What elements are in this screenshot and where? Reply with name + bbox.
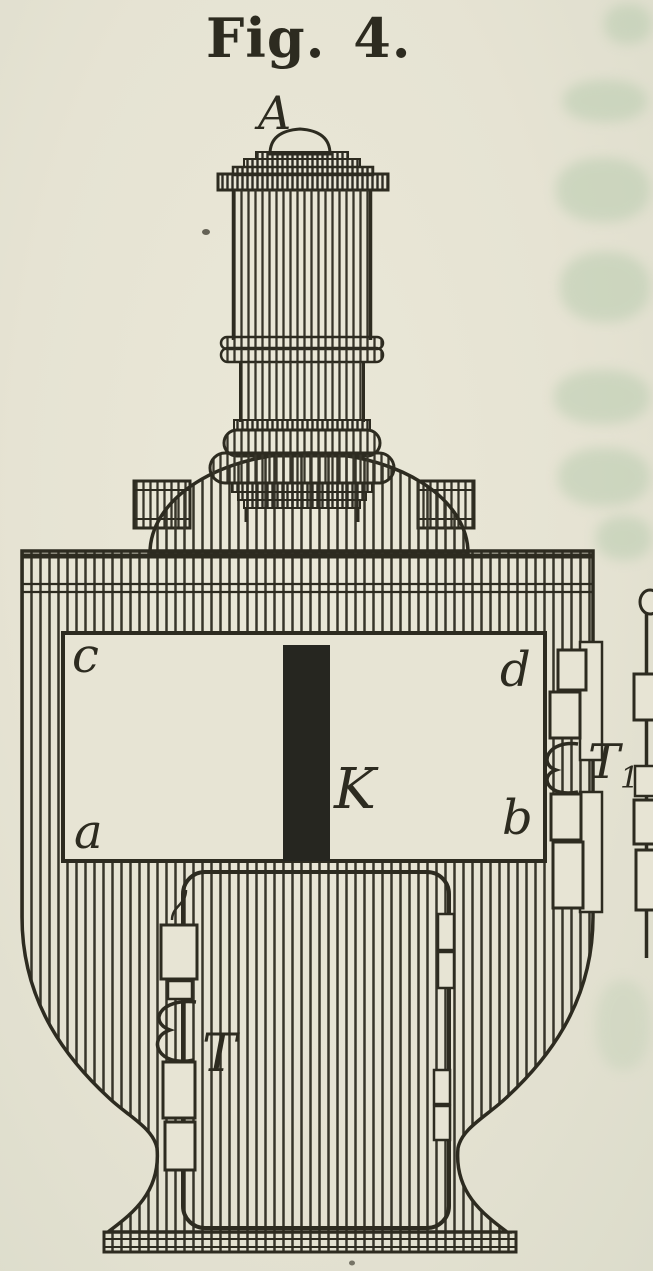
door-hinge	[434, 1106, 450, 1140]
label-window-a: a	[74, 808, 103, 856]
label-rod-k: K	[334, 762, 376, 818]
chimney-stack	[210, 129, 394, 522]
label-window-b: b	[502, 794, 533, 842]
base-plate	[104, 1232, 516, 1252]
label-terminal-t1: T1	[588, 738, 639, 794]
label-terminal-t1-base: T	[588, 734, 620, 790]
door-hinge	[438, 914, 454, 950]
label-window-c: c	[72, 632, 99, 680]
scanned-page: Fig. 4. A c d a b K T1 T	[0, 0, 653, 1271]
rod-K	[283, 645, 330, 861]
bulge-ring	[210, 453, 394, 483]
label-window-d: d	[500, 646, 531, 694]
door-hinge	[438, 952, 454, 988]
label-terminal-t1-subscript: 1	[620, 761, 639, 796]
upper-cylinder	[232, 190, 372, 338]
door-hinge	[434, 1070, 450, 1104]
label-terminal-t: T	[202, 1028, 237, 1080]
figure-title: Fig. 4.	[206, 6, 412, 70]
cap-flange	[218, 174, 388, 190]
mid-cylinder	[239, 362, 365, 420]
observation-window	[63, 633, 545, 861]
label-apparatus-top: A	[258, 90, 291, 136]
